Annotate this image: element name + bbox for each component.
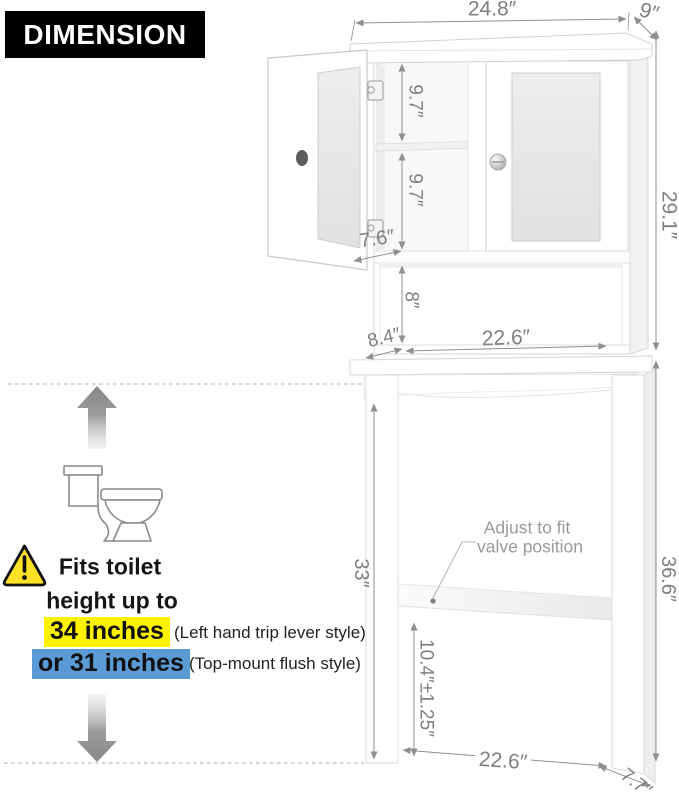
valve-note-line2: valve position bbox=[477, 538, 583, 556]
dimension-header: DIMENSION bbox=[5, 11, 205, 58]
dim-cubby-height: 8″ bbox=[402, 291, 421, 308]
toilet-stand bbox=[350, 356, 655, 783]
right-leg bbox=[612, 375, 644, 774]
dim-top-width: 24.8″ bbox=[468, 0, 516, 20]
cabinet-hutch bbox=[268, 33, 652, 354]
crown-molding bbox=[350, 33, 652, 63]
fit-option2-style: (Top-mount flush style) bbox=[189, 654, 361, 674]
warning-icon bbox=[4, 546, 45, 585]
dimension-diagram: DIMENSION 24.8″ 9″ 29.1″ 9.7″ 9.7″ 7.6″ … bbox=[0, 0, 679, 803]
dim-crossbar-to-floor: 10.4″±1.25″ bbox=[417, 639, 436, 737]
fit-text-line1: Fits toilet bbox=[59, 554, 161, 581]
left-door-glass bbox=[318, 67, 360, 248]
dim-shelf-upper: 9.7″ bbox=[406, 84, 425, 117]
down-arrow-icon bbox=[77, 694, 117, 762]
fit-option1-style: (Left hand trip lever style) bbox=[174, 623, 366, 643]
dim-base-inner-width: 22.6″ bbox=[474, 749, 532, 774]
dim-cubby-width: 22.6″ bbox=[481, 327, 530, 350]
adjustable-crossbar bbox=[398, 584, 612, 620]
dim-door-width: 7.6″ bbox=[358, 227, 395, 252]
dim-hutch-height: 29.1″ bbox=[659, 191, 679, 239]
fit-option2-value: or 31 inches bbox=[32, 649, 190, 679]
fit-option1-value: 34 inches bbox=[44, 617, 170, 647]
arched-apron bbox=[364, 374, 638, 400]
up-arrow-icon bbox=[77, 386, 117, 449]
dim-total-height: 36.6″ bbox=[658, 556, 678, 602]
left-door-knob bbox=[296, 150, 308, 166]
cabinet-drawing bbox=[0, 0, 679, 803]
dimension-title: DIMENSION bbox=[23, 19, 186, 51]
dim-shelf-lower: 9.7″ bbox=[406, 173, 425, 206]
dim-stand-inner-height: 33″ bbox=[351, 558, 371, 587]
toilet-icon bbox=[64, 466, 162, 541]
right-door-glass bbox=[512, 73, 600, 241]
fit-text-line2: height up to bbox=[46, 588, 178, 615]
valve-note-line1: Adjust to fit bbox=[484, 519, 571, 537]
